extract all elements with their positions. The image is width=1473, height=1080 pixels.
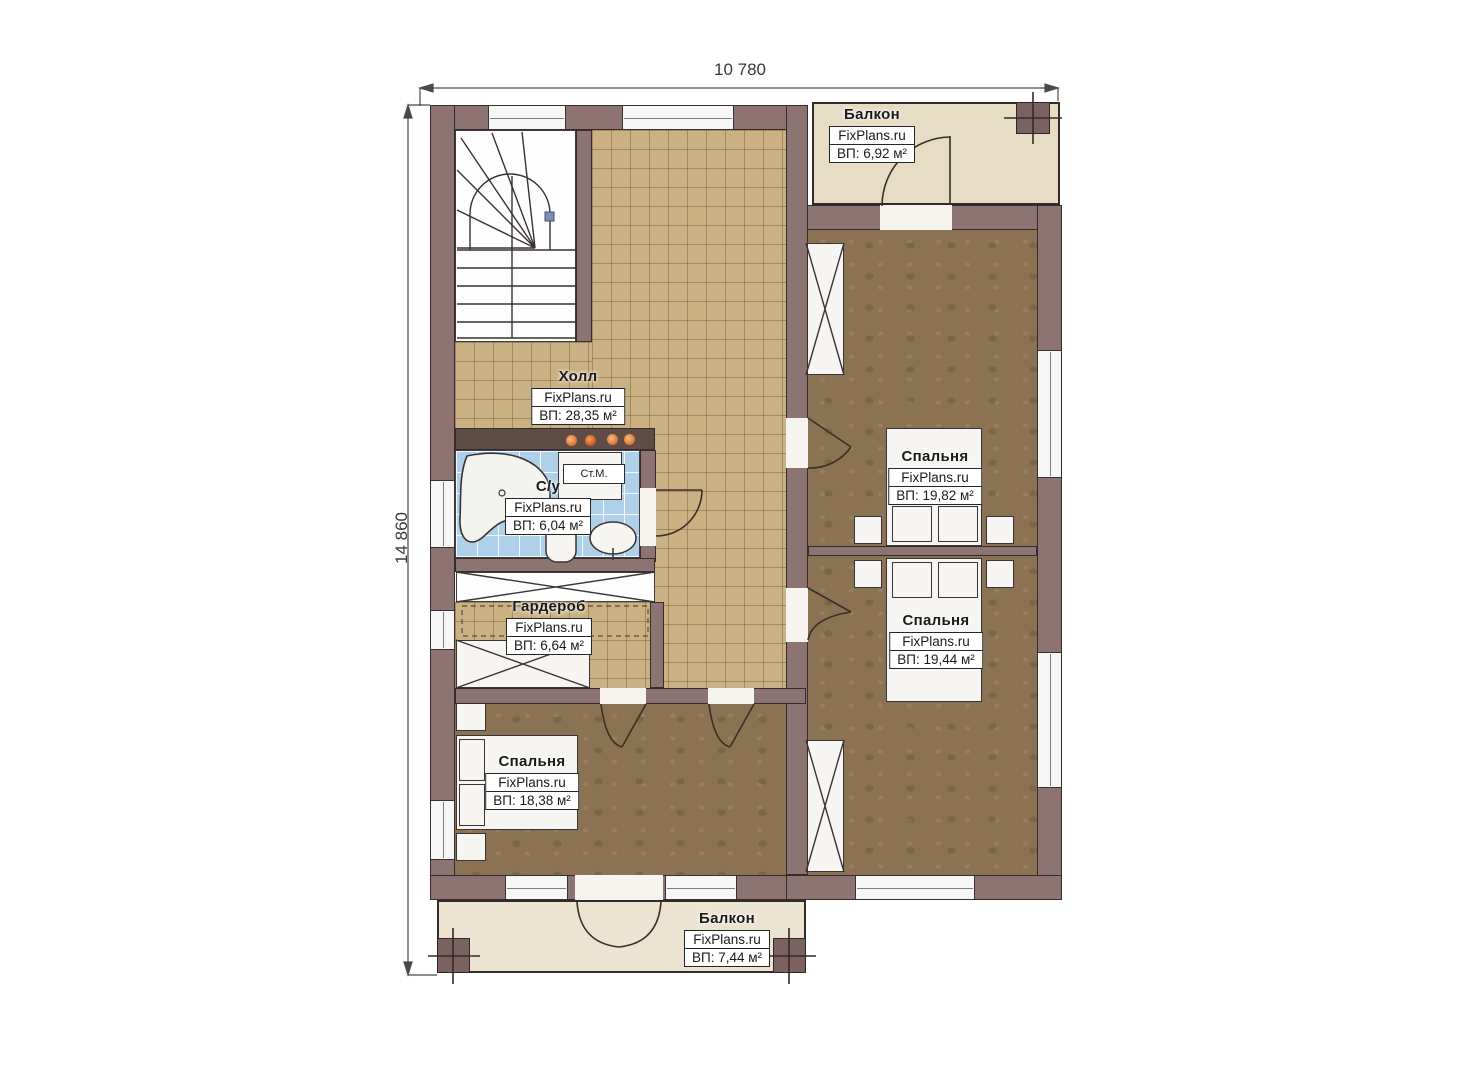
pillow <box>892 562 932 598</box>
room-area: ВП: 19,44 м² <box>890 650 982 668</box>
room-label-hall: Холл FixPlans.ru ВП: 28,35 м² <box>531 368 625 425</box>
wall-middle <box>786 105 808 875</box>
room-area: ВП: 6,64 м² <box>507 636 591 654</box>
spotlight-icon <box>566 435 577 446</box>
pillow <box>459 784 485 826</box>
room-watermark: FixPlans.ru <box>486 774 578 791</box>
door-opening-bathroom <box>640 488 656 546</box>
room-title: С/у <box>536 478 560 495</box>
spotlight-icon <box>624 434 635 445</box>
spotlight-icon <box>585 435 596 446</box>
room-title: Спальня <box>902 448 969 465</box>
nightstand <box>456 833 486 861</box>
nightstand <box>456 703 486 731</box>
column-balcony-top <box>1016 102 1050 134</box>
door-opening-balcony-bottom <box>575 875 663 900</box>
room-label-box: FixPlans.ru ВП: 28,35 м² <box>531 388 625 425</box>
wall-top <box>430 105 808 130</box>
door-opening-bedroom-tr <box>786 418 808 468</box>
room-label-box: FixPlans.ru ВП: 19,44 м² <box>889 632 983 669</box>
room-label-balcony-top: Балкон FixPlans.ru ВП: 6,92 м² <box>829 106 915 163</box>
wall-bathroom-bottom <box>455 558 655 572</box>
room-label-box: FixPlans.ru ВП: 7,44 м² <box>684 930 770 967</box>
room-watermark: FixPlans.ru <box>685 931 769 948</box>
room-watermark: FixPlans.ru <box>532 389 624 406</box>
room-area: ВП: 7,44 м² <box>685 948 769 966</box>
window-right-2 <box>1037 652 1062 788</box>
window-left-1 <box>430 480 455 548</box>
window-left-3 <box>430 800 455 860</box>
door-opening-bedroom-bl-1 <box>600 688 646 704</box>
room-watermark: FixPlans.ru <box>889 469 981 486</box>
door-opening-balcony-top <box>880 205 952 230</box>
window-bottom-2 <box>665 875 737 900</box>
wall-right <box>1037 205 1062 900</box>
window-top-2 <box>622 105 734 130</box>
room-label-balcony-bottom: Балкон FixPlans.ru ВП: 7,44 м² <box>684 910 770 967</box>
room-watermark: FixPlans.ru <box>890 633 982 650</box>
door-opening-bedroom-bl-2 <box>708 688 754 704</box>
room-title: Спальня <box>499 753 566 770</box>
door-opening-bedroom-br <box>786 588 808 642</box>
wall-wardrobe-right <box>650 602 664 688</box>
pillow <box>459 739 485 781</box>
room-watermark: FixPlans.ru <box>506 499 590 516</box>
room-label-wardrobe: Гардероб FixPlans.ru ВП: 6,64 м² <box>506 598 592 655</box>
dimension-width-label: 10 780 <box>690 60 790 80</box>
room-label-bedroom-bottom-right: Спальня FixPlans.ru ВП: 19,44 м² <box>889 612 983 669</box>
wall-stairwell <box>576 130 592 342</box>
room-area: ВП: 28,35 м² <box>532 406 624 424</box>
window-right-1 <box>1037 350 1062 478</box>
floor-plan: Ст.М. <box>0 0 1473 1080</box>
closet-bottom-right <box>806 740 844 872</box>
column-balcony-bottom-right <box>773 938 806 973</box>
window-left-2 <box>430 610 455 650</box>
room-area: ВП: 19,82 м² <box>889 486 981 504</box>
window-bottom-right-wing <box>855 875 975 900</box>
window-top-1 <box>488 105 566 130</box>
room-label-box: FixPlans.ru ВП: 6,92 м² <box>829 126 915 163</box>
column-balcony-bottom-left <box>437 938 470 973</box>
nightstand <box>854 516 882 544</box>
closet-top-right <box>806 243 844 375</box>
spotlight-icon <box>607 434 618 445</box>
room-watermark: FixPlans.ru <box>830 127 914 144</box>
stairwell-floor <box>455 130 576 342</box>
room-watermark: FixPlans.ru <box>507 619 591 636</box>
window-bottom-1 <box>505 875 568 900</box>
room-title: Гардероб <box>512 598 585 615</box>
room-label-bathroom: С/у FixPlans.ru ВП: 6,04 м² <box>505 478 591 535</box>
room-area: ВП: 6,92 м² <box>830 144 914 162</box>
room-label-bedroom-top-right: Спальня FixPlans.ru ВП: 19,82 м² <box>888 448 982 505</box>
room-label-box: FixPlans.ru ВП: 6,64 м² <box>506 618 592 655</box>
room-title: Холл <box>559 368 598 385</box>
nightstand <box>986 516 1014 544</box>
wall-bedrooms-divider <box>808 546 1037 556</box>
dimension-height-label: 14 860 <box>392 488 412 588</box>
room-label-box: FixPlans.ru ВП: 19,82 м² <box>888 468 982 505</box>
room-title: Балкон <box>844 106 900 123</box>
pillow <box>938 562 978 598</box>
room-title: Спальня <box>903 612 970 629</box>
nightstand <box>854 560 882 588</box>
room-area: ВП: 18,38 м² <box>486 791 578 809</box>
room-label-bedroom-bottom-left: Спальня FixPlans.ru ВП: 18,38 м² <box>485 753 579 810</box>
pillow <box>892 506 932 542</box>
room-label-box: FixPlans.ru ВП: 6,04 м² <box>505 498 591 535</box>
room-label-box: FixPlans.ru ВП: 18,38 м² <box>485 773 579 810</box>
pillow <box>938 506 978 542</box>
nightstand <box>986 560 1014 588</box>
room-title: Балкон <box>699 910 755 927</box>
room-area: ВП: 6,04 м² <box>506 516 590 534</box>
